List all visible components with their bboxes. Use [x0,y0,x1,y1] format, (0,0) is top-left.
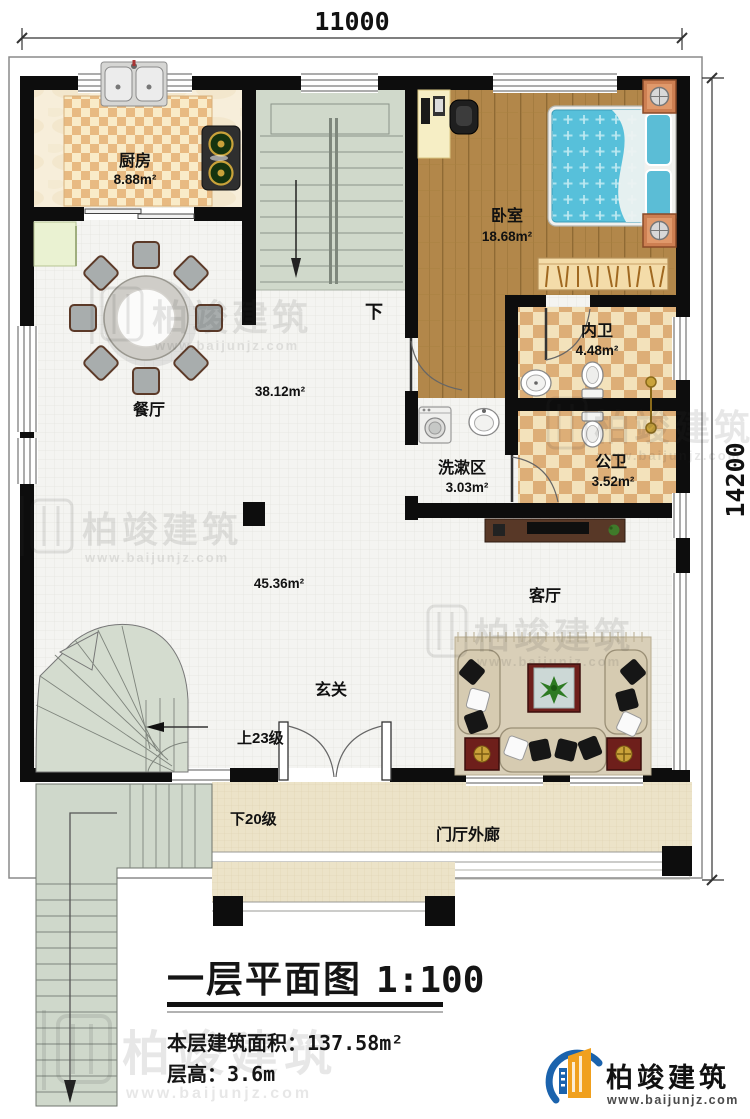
kitchen-sink [101,60,167,106]
dimension-right: 14200 [702,73,750,885]
tv-console [485,519,625,542]
side-table-left [465,738,499,770]
bed [548,106,676,226]
bed-pillow [646,114,671,165]
window-bath-right [672,493,694,538]
ensuite-toilet [582,362,603,398]
window-ensuite-right [672,317,694,380]
dimension-top-value: 11000 [314,7,389,36]
svg-text:www.baijunjz.com: www.baijunjz.com [84,550,229,565]
living-area: 45.36m² [254,576,305,591]
porch-label: 门厅外廊 [436,825,500,844]
wash-area-sink [469,409,499,436]
wash-label: 洗漱区 [438,458,486,477]
floor-plan-sheet: 厨房 8.88m² 餐厅 38.12m² 卧室 18.68m² 内卫 4.48m… [0,0,750,1119]
svg-text:www.baijunjz.com: www.baijunjz.com [476,654,621,669]
kitchen-stove [202,126,240,190]
bath-area: 3.52m² [592,474,635,489]
ensuite-sink [521,370,551,396]
wardrobe [538,258,668,290]
stair-down-label: 下 [365,302,383,322]
washing-machine [419,407,451,443]
svg-text:柏竣建筑: 柏竣建筑 [82,509,242,550]
svg-text:柏竣建筑: 柏竣建筑 [474,615,634,656]
bedroom-label: 卧室 [491,206,523,225]
porch-step-platform [212,862,455,902]
kitchen-sliding-door [84,208,194,220]
porch-column-right [662,846,692,876]
green-cabinet [34,222,76,266]
window-stair-top [301,72,378,93]
porch [212,782,692,911]
bedroom-area: 18.68m² [482,229,533,244]
down-steps-label: 下20级 [230,810,278,828]
window-bedroom-top [493,72,617,93]
living-label: 客厅 [529,586,561,605]
porch-column-mid [425,896,455,926]
foyer-label: 玄关 [315,680,347,699]
dining-label: 餐厅 [132,400,165,419]
svg-text:www.baijunjz.com: www.baijunjz.com [596,448,741,463]
dining-area: 38.12m² [255,384,306,399]
kitchen-rug [64,96,212,206]
ensuite-label: 内卫 [581,321,613,340]
company-logo-text: 柏竣建筑 [606,1062,730,1093]
svg-text:柏竣建筑: 柏竣建筑 [152,297,312,338]
porch-column-left [213,896,243,926]
nightstand-bottom [643,214,676,247]
window-living-right [672,573,694,770]
svg-text:www.baijunjz.com: www.baijunjz.com [125,1085,312,1102]
company-logo: 柏竣建筑 www.baijunjz.com [549,1048,739,1107]
nightstand-top [643,80,676,113]
floor-plan-drawing: 厨房 8.88m² 餐厅 38.12m² 卧室 18.68m² 内卫 4.48m… [0,0,750,1119]
svg-text:柏竣建筑: 柏竣建筑 [594,407,750,448]
porch-edge-band [212,852,692,862]
wash-area: 3.03m² [446,480,489,495]
company-logo-url: www.baijunjz.com [606,1093,739,1107]
ensuite-area: 4.48m² [576,343,619,358]
company-logo-icon [549,1048,599,1100]
floor-height-line: 层高：3.6m [167,1062,275,1086]
svg-text:www.baijunjz.com: www.baijunjz.com [154,338,299,353]
dimension-top: 11000 [17,7,687,50]
title-rule-thick [167,1002,443,1007]
window-dining-left-2 [16,438,38,484]
floor-area-line: 本层建筑面积：137.58m² [167,1031,403,1055]
column [243,502,265,526]
up-steps-label: 上23级 [237,729,285,747]
plan-title: 一层平面图1:100 [167,959,484,1001]
kitchen-area: 8.88m² [114,172,157,187]
window-dining-left-1 [16,326,38,432]
coffee-table [528,664,580,712]
side-table-right [607,738,641,770]
kitchen-label: 厨房 [119,151,151,170]
